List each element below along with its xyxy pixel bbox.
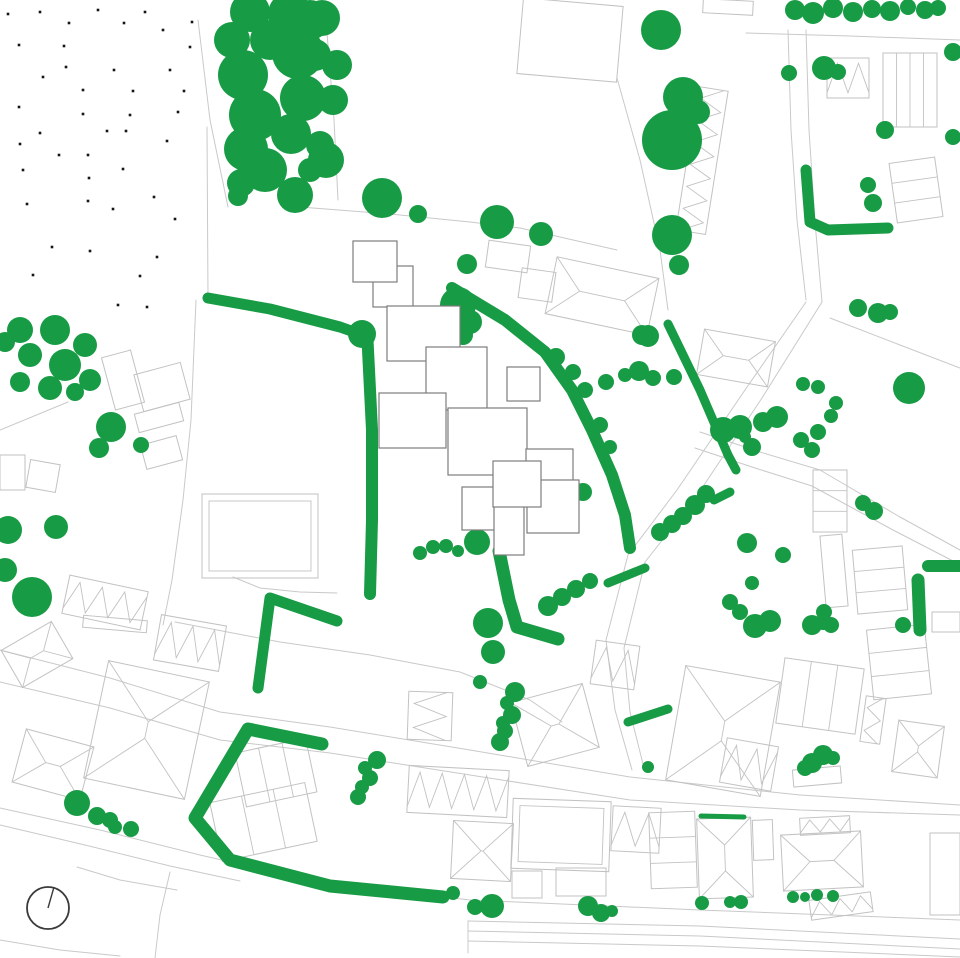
tree-canopy	[745, 576, 759, 590]
tree-canopy	[732, 604, 748, 620]
orchard-dot	[82, 89, 85, 92]
orchard-dot	[125, 130, 128, 133]
tree-canopy	[123, 821, 139, 837]
orchard-dot	[87, 200, 90, 203]
tree-canopy	[426, 540, 440, 554]
tree-canopy	[473, 608, 503, 638]
tree-canopy	[350, 789, 366, 805]
orchard-dot	[117, 304, 120, 307]
tree-canopy	[271, 114, 311, 154]
tree-canopy	[603, 440, 617, 454]
tree-canopy	[652, 215, 692, 255]
orchard-dot	[189, 46, 192, 49]
tree-canopy	[695, 896, 709, 910]
tree-canopy	[529, 222, 553, 246]
tree-canopy	[491, 733, 509, 751]
tree-canopy	[18, 343, 42, 367]
orchard-dot	[58, 154, 61, 157]
tree-canopy	[44, 515, 68, 539]
proposal-building-square	[379, 393, 446, 448]
tree-canopy	[582, 573, 598, 589]
tree-canopy	[645, 370, 661, 386]
tree-canopy	[830, 64, 846, 80]
tree-canopy	[737, 533, 757, 553]
orchard-dot	[146, 306, 149, 309]
orchard-dot	[112, 208, 115, 211]
tree-canopy	[797, 760, 813, 776]
orchard-dot	[156, 256, 159, 259]
map-background	[0, 0, 960, 958]
orchard-dot	[123, 22, 126, 25]
tree-canopy	[322, 50, 352, 80]
tree-canopy	[49, 349, 81, 381]
tree-canopy	[637, 325, 659, 347]
tree-canopy	[893, 372, 925, 404]
orchard-dot	[39, 11, 42, 14]
tree-canopy	[473, 675, 487, 689]
tree-canopy	[73, 333, 97, 357]
orchard-dot	[39, 132, 42, 135]
tree-canopy	[860, 177, 876, 193]
tree-canopy	[739, 431, 751, 443]
orchard-dot	[82, 113, 85, 116]
tree-canopy	[811, 380, 825, 394]
tree-canopy	[829, 396, 843, 410]
orchard-dot	[106, 130, 109, 133]
orchard-dot	[19, 143, 22, 146]
orchard-dot	[129, 114, 132, 117]
tree-canopy	[89, 438, 109, 458]
site-plan-map	[0, 0, 960, 958]
orchard-dot	[144, 11, 147, 14]
tree-canopy	[849, 299, 867, 317]
tree-canopy	[12, 577, 52, 617]
orchard-dot	[65, 66, 68, 69]
site-plan-page	[0, 0, 960, 958]
tree-canopy	[642, 110, 702, 170]
tree-canopy	[775, 547, 791, 563]
tree-canopy	[457, 254, 477, 274]
orchard-dot	[7, 13, 10, 16]
tree-canopy	[606, 905, 618, 917]
tree-canopy	[787, 891, 799, 903]
tree-canopy	[598, 374, 614, 390]
tree-canopy	[642, 761, 654, 773]
orchard-dot	[97, 9, 100, 12]
tree-canopy	[413, 546, 427, 560]
tree-canopy	[930, 0, 946, 16]
tree-canopy	[348, 320, 376, 348]
tree-canopy	[409, 205, 427, 223]
tree-canopy	[464, 529, 490, 555]
tree-canopy	[64, 790, 90, 816]
proposal-building-square	[493, 461, 541, 507]
orchard-dot	[88, 177, 91, 180]
tree-canopy	[843, 2, 863, 22]
tree-canopy	[10, 372, 30, 392]
tree-canopy	[766, 406, 788, 428]
tree-canopy	[759, 610, 781, 632]
tree-canopy	[40, 315, 70, 345]
hedge-band	[918, 580, 920, 630]
proposal-building-square	[494, 506, 524, 555]
tree-canopy	[66, 383, 84, 401]
tree-canopy	[734, 895, 748, 909]
tree-canopy	[439, 539, 453, 553]
orchard-dot	[169, 69, 172, 72]
tree-canopy	[826, 751, 840, 765]
orchard-dot	[32, 274, 35, 277]
orchard-dot	[183, 90, 186, 93]
tree-canopy	[298, 158, 322, 182]
tree-canopy	[565, 364, 581, 380]
tree-canopy	[802, 2, 824, 24]
tree-canopy	[480, 894, 504, 918]
tree-canopy	[865, 502, 883, 520]
tree-canopy	[452, 545, 464, 557]
tree-canopy	[318, 85, 348, 115]
orchard-dot	[63, 45, 66, 48]
tree-canopy	[824, 409, 838, 423]
orchard-dot	[42, 76, 45, 79]
tree-canopy	[882, 304, 898, 320]
tree-canopy	[669, 255, 689, 275]
orchard-dot	[139, 275, 142, 278]
tree-canopy	[481, 640, 505, 664]
orchard-dot	[51, 246, 54, 249]
tree-canopy	[133, 437, 149, 453]
orchard-dot	[18, 44, 21, 47]
tree-canopy	[362, 178, 402, 218]
orchard-dot	[132, 90, 135, 93]
tree-canopy	[796, 377, 810, 391]
tree-canopy	[800, 892, 810, 902]
tree-canopy	[547, 348, 565, 366]
tree-canopy	[785, 0, 805, 20]
proposal-building-square	[353, 241, 397, 282]
tree-canopy	[446, 886, 460, 900]
orchard-dot	[22, 169, 25, 172]
tree-canopy	[108, 820, 122, 834]
orchard-dot	[177, 111, 180, 114]
orchard-dot	[191, 21, 194, 24]
orchard-dot	[18, 106, 21, 109]
tree-canopy	[592, 417, 608, 433]
tree-canopy	[880, 1, 900, 21]
orchard-dot	[87, 154, 90, 157]
proposal-building-square	[507, 367, 540, 401]
tree-canopy	[96, 412, 126, 442]
tree-canopy	[876, 121, 894, 139]
tree-canopy	[811, 889, 823, 901]
tree-canopy	[863, 0, 881, 18]
tree-canopy	[38, 376, 62, 400]
tree-canopy	[810, 424, 826, 440]
tree-canopy	[228, 186, 248, 206]
tree-canopy	[666, 369, 682, 385]
tree-canopy	[577, 382, 593, 398]
tree-canopy	[697, 485, 715, 503]
hedge-band	[701, 816, 744, 817]
tree-canopy	[804, 442, 820, 458]
orchard-dot	[122, 168, 125, 171]
hedge-band	[367, 330, 372, 594]
orchard-dot	[89, 250, 92, 253]
tree-canopy	[480, 205, 514, 239]
tree-canopy	[277, 177, 313, 213]
orchard-dot	[162, 29, 165, 32]
orchard-dot	[166, 140, 169, 143]
tree-canopy	[823, 617, 839, 633]
tree-canopy	[290, 0, 330, 40]
tree-canopy	[827, 890, 839, 902]
orchard-dot	[174, 218, 177, 221]
orchard-dot	[68, 22, 71, 25]
tree-canopy	[781, 65, 797, 81]
orchard-dot	[26, 203, 29, 206]
orchard-dot	[113, 69, 116, 72]
orchard-dot	[153, 196, 156, 199]
tree-canopy	[641, 10, 681, 50]
tree-canopy	[895, 617, 911, 633]
tree-canopy	[864, 194, 882, 212]
